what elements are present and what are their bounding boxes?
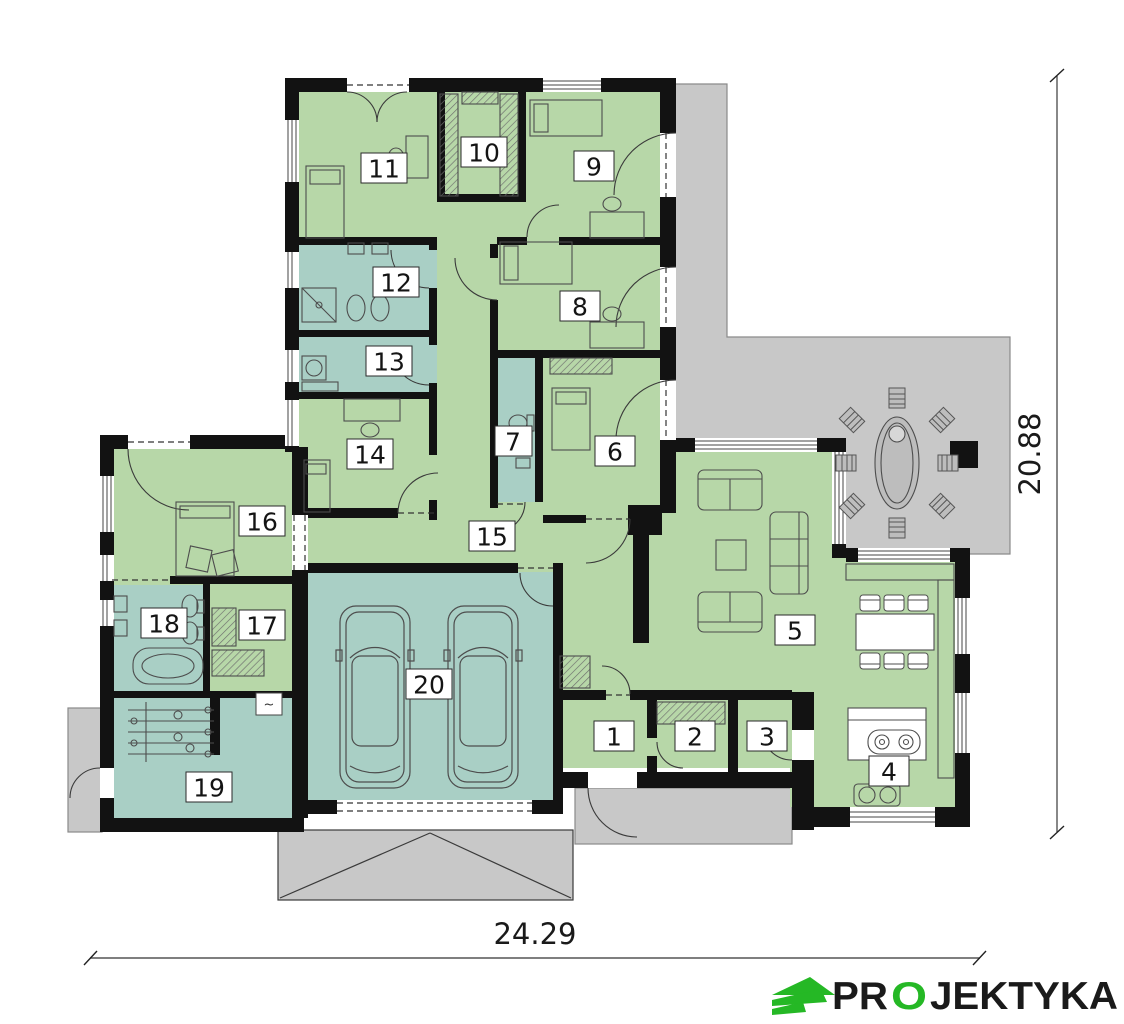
room-number: 17 [246,612,278,641]
kitchen-island [848,708,926,760]
logo-building-icon [772,977,835,1015]
logo: PR O JEKTYKA [772,975,1118,1018]
room-label-1: 1 [594,721,634,752]
front-porch [278,830,573,900]
room-label-11: 11 [361,153,407,184]
room-number: 12 [380,269,412,298]
room-label-7: 7 [495,426,532,457]
room-label-2: 2 [675,721,715,752]
room-number: 15 [476,523,508,552]
height-dimension-value: 20.88 [1013,412,1047,495]
room-label-10: 10 [461,137,507,168]
room-number: 13 [373,348,405,377]
room-number: 20 [413,671,445,700]
room-number: 7 [505,428,521,457]
room-number: 16 [246,508,278,537]
room-label-13: 13 [366,346,412,377]
room-number: 18 [148,610,180,639]
room-label-6: 6 [595,436,635,467]
room-label-19: 19 [186,772,232,803]
logo-text-jektyka: JEKTYKA [930,975,1118,1018]
height-dimension [1050,69,1064,839]
side-steps [68,708,102,832]
room-number: 14 [354,441,386,470]
room-number: 4 [881,758,897,787]
logo-text-pr: PR [832,975,888,1018]
room-number: 9 [586,153,602,182]
room-number: 5 [787,617,803,646]
room-label-20: 20 [406,669,452,700]
width-dimension-value: 24.29 [493,917,576,951]
floor-plan-page: 1 2 3 4 5 6 7 8 9 10 11 12 13 14 15 16 1… [0,0,1124,1024]
entry-walkway [575,788,792,844]
water-heater-symbol: ~ [256,693,282,715]
room-number: 19 [193,774,225,803]
room-label-18: 18 [141,608,187,639]
room-number: 11 [368,155,400,184]
logo-text-o: O [891,975,927,1018]
room-label-8: 8 [560,291,600,322]
room-label-3: 3 [747,721,787,752]
room-label-4: 4 [869,756,909,787]
room-floors [112,88,957,818]
floor-plan-drawing: 1 2 3 4 5 6 7 8 9 10 11 12 13 14 15 16 1… [0,0,1124,1024]
room-label-17: 17 [239,610,285,641]
room-number: 8 [572,293,588,322]
room-label-12: 12 [373,267,419,298]
bath-18-floor [112,585,207,697]
room-label-15: 15 [469,521,515,552]
room-number: 1 [606,723,622,752]
room-label-5: 5 [775,615,815,646]
closet-hall [560,656,590,688]
water-heater-glyph: ~ [264,698,275,713]
width-dimension [84,951,986,965]
room-number: 3 [759,723,775,752]
dining-set [856,595,934,669]
closet-room6 [550,358,612,374]
room-label-9: 9 [574,151,614,182]
room-label-16: 16 [239,506,285,537]
room-label-14: 14 [347,439,393,470]
room-number: 10 [468,139,500,168]
room-number: 6 [607,438,623,467]
room-number: 2 [687,723,703,752]
